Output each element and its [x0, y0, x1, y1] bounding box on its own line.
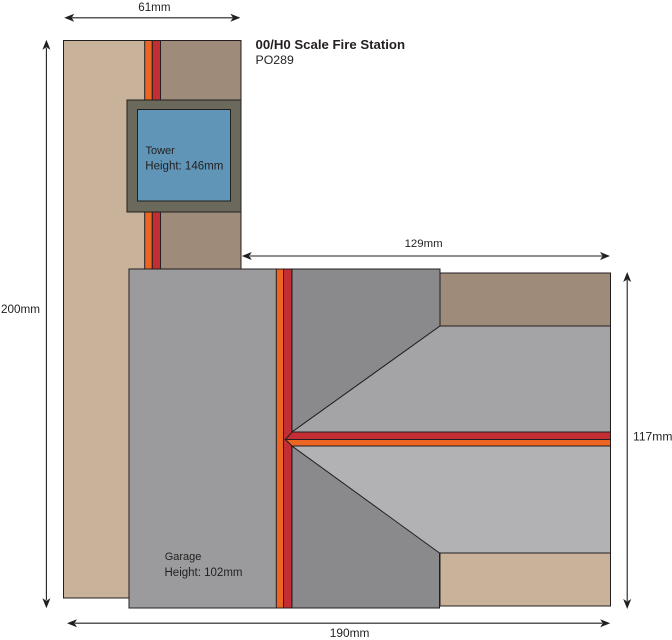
- svg-text:Garage: Garage: [165, 551, 202, 563]
- svg-text:61mm: 61mm: [138, 1, 170, 14]
- svg-text:00/H0 Scale Fire Station: 00/H0 Scale Fire Station: [256, 37, 406, 52]
- svg-text:129mm: 129mm: [405, 238, 443, 250]
- svg-text:Tower: Tower: [146, 145, 176, 157]
- svg-text:Height: 102mm: Height: 102mm: [165, 567, 243, 579]
- svg-text:190mm: 190mm: [330, 626, 370, 640]
- svg-text:117mm: 117mm: [633, 430, 672, 444]
- svg-text:200mm: 200mm: [1, 303, 40, 316]
- svg-text:Height: 146mm: Height: 146mm: [145, 160, 223, 172]
- svg-text:PO289: PO289: [256, 53, 294, 67]
